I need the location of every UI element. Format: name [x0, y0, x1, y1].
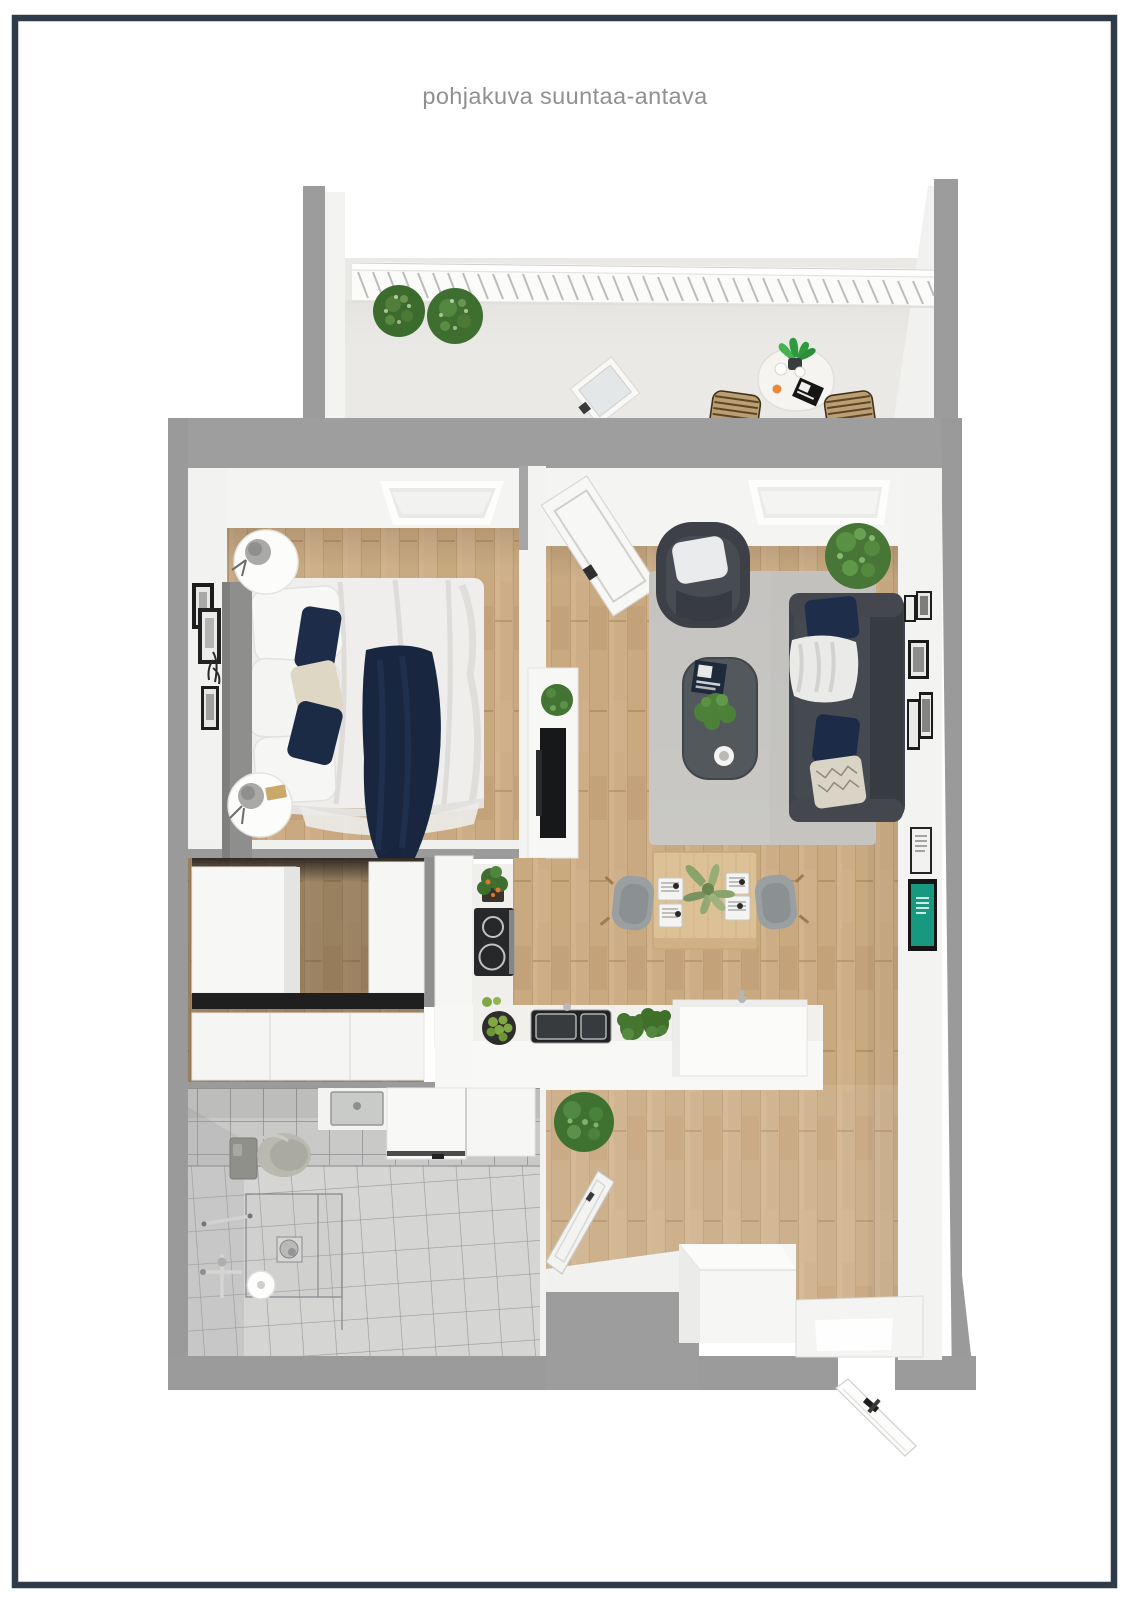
svg-text:pohjakuva suuntaa-antava: pohjakuva suuntaa-antava — [422, 83, 708, 109]
